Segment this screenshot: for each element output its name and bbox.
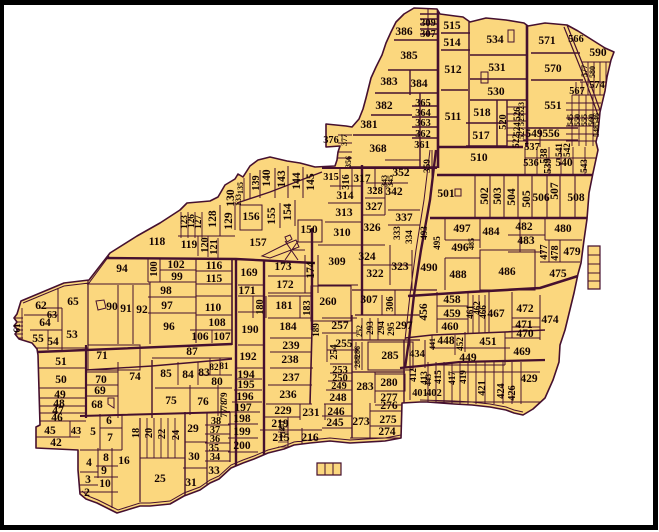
svg-text:2: 2	[84, 487, 90, 499]
svg-text:417: 417	[447, 371, 457, 385]
svg-text:110: 110	[205, 302, 222, 314]
svg-text:441: 441	[428, 338, 437, 350]
svg-text:506: 506	[532, 192, 550, 204]
svg-text:6: 6	[106, 415, 112, 427]
svg-text:61: 61	[12, 323, 22, 333]
svg-text:78: 78	[219, 400, 229, 410]
svg-text:54: 54	[47, 336, 59, 348]
svg-text:45: 45	[44, 425, 56, 437]
svg-text:510: 510	[470, 152, 488, 164]
svg-text:493: 493	[419, 226, 429, 240]
svg-text:451: 451	[479, 336, 497, 348]
svg-text:231: 231	[302, 407, 320, 419]
svg-text:412: 412	[408, 368, 418, 382]
svg-text:121: 121	[209, 239, 220, 254]
svg-text:522: 522	[511, 134, 521, 148]
svg-text:83: 83	[198, 367, 210, 379]
svg-text:144: 144	[291, 172, 303, 190]
svg-text:51: 51	[55, 356, 67, 368]
svg-text:55: 55	[32, 333, 44, 345]
svg-text:524: 524	[512, 122, 522, 136]
svg-text:53: 53	[66, 329, 78, 341]
svg-text:189: 189	[311, 323, 321, 337]
svg-text:386: 386	[395, 26, 413, 38]
svg-text:62: 62	[35, 300, 47, 312]
svg-text:490: 490	[420, 262, 438, 274]
svg-text:198: 198	[233, 413, 251, 425]
svg-text:483: 483	[517, 235, 535, 247]
svg-text:16: 16	[118, 455, 130, 467]
svg-text:497: 497	[453, 223, 471, 235]
svg-text:31: 31	[185, 477, 197, 489]
svg-text:184: 184	[279, 321, 297, 333]
svg-text:504: 504	[506, 188, 518, 206]
svg-text:580: 580	[588, 66, 597, 78]
svg-text:460: 460	[441, 321, 459, 333]
svg-text:85: 85	[160, 368, 172, 380]
svg-text:452: 452	[455, 337, 465, 351]
svg-text:486: 486	[498, 266, 516, 278]
svg-text:467: 467	[487, 308, 505, 320]
svg-text:106: 106	[191, 331, 209, 343]
svg-text:143: 143	[276, 170, 288, 188]
svg-text:566: 566	[568, 34, 583, 45]
svg-text:520: 520	[498, 114, 509, 129]
svg-text:415: 415	[433, 370, 443, 384]
svg-text:64: 64	[39, 317, 51, 329]
svg-text:38: 38	[211, 416, 221, 427]
svg-text:376: 376	[323, 135, 338, 146]
svg-text:505: 505	[521, 190, 533, 208]
svg-text:238: 238	[281, 354, 299, 366]
svg-text:18: 18	[131, 428, 142, 438]
svg-text:190: 190	[241, 324, 259, 336]
svg-text:75: 75	[165, 395, 177, 407]
svg-text:363: 363	[415, 118, 430, 129]
svg-text:91: 91	[120, 303, 132, 315]
svg-text:274: 274	[378, 426, 396, 438]
svg-text:448: 448	[437, 335, 455, 347]
svg-text:229: 229	[274, 405, 292, 417]
svg-text:539: 539	[543, 158, 554, 173]
svg-text:200: 200	[233, 440, 251, 452]
svg-text:426: 426	[507, 385, 518, 400]
svg-text:560: 560	[587, 114, 596, 126]
svg-text:80: 80	[211, 376, 223, 388]
svg-text:71: 71	[96, 350, 108, 362]
svg-text:315: 315	[323, 172, 338, 183]
svg-text:219: 219	[271, 418, 289, 430]
svg-text:155: 155	[266, 207, 278, 225]
svg-text:276: 276	[380, 400, 398, 412]
svg-text:537: 537	[524, 142, 539, 153]
svg-text:245: 245	[326, 417, 344, 429]
svg-text:68: 68	[91, 399, 103, 411]
svg-text:5: 5	[90, 426, 96, 438]
svg-text:7: 7	[107, 432, 113, 444]
svg-text:81: 81	[219, 361, 229, 371]
svg-text:285: 285	[381, 350, 399, 362]
svg-text:237: 237	[282, 372, 300, 384]
svg-text:377: 377	[340, 134, 349, 146]
svg-text:25: 25	[154, 473, 166, 485]
svg-text:496: 496	[451, 242, 469, 254]
svg-text:352: 352	[392, 167, 410, 179]
svg-text:135: 135	[236, 182, 245, 194]
svg-text:309: 309	[328, 256, 346, 268]
svg-text:128: 128	[207, 210, 219, 228]
svg-text:92: 92	[136, 304, 148, 316]
svg-text:501: 501	[437, 188, 455, 200]
svg-text:313: 313	[335, 207, 353, 219]
svg-text:118: 118	[149, 236, 166, 248]
svg-text:323: 323	[391, 261, 409, 273]
svg-text:306: 306	[385, 296, 396, 311]
svg-text:157: 157	[249, 237, 267, 249]
svg-text:295: 295	[386, 322, 396, 336]
svg-text:140: 140	[261, 169, 273, 187]
svg-text:183: 183	[302, 300, 313, 315]
svg-text:556: 556	[542, 128, 560, 140]
svg-text:475: 475	[549, 268, 567, 280]
svg-text:419: 419	[458, 370, 468, 384]
svg-text:215: 215	[272, 432, 290, 444]
svg-text:449: 449	[459, 352, 477, 364]
svg-text:314: 314	[336, 190, 354, 202]
svg-text:127: 127	[193, 215, 203, 229]
svg-text:334: 334	[404, 230, 414, 244]
svg-text:383: 383	[380, 76, 398, 88]
svg-text:181: 181	[275, 300, 293, 312]
svg-text:108: 108	[208, 317, 226, 329]
svg-text:362: 362	[415, 129, 430, 140]
svg-text:29: 29	[187, 423, 199, 435]
svg-text:512: 512	[444, 64, 462, 76]
svg-text:33: 33	[208, 465, 220, 477]
svg-text:79: 79	[219, 392, 229, 402]
svg-text:65: 65	[67, 296, 79, 308]
svg-text:273: 273	[352, 416, 370, 428]
svg-text:402: 402	[426, 388, 441, 399]
svg-text:76: 76	[197, 396, 209, 408]
svg-text:337: 337	[395, 212, 413, 224]
svg-text:333: 333	[392, 226, 402, 240]
svg-text:8: 8	[103, 452, 109, 464]
svg-text:429: 429	[520, 373, 538, 385]
svg-text:42: 42	[50, 437, 62, 449]
svg-text:484: 484	[482, 226, 500, 238]
svg-text:249: 249	[331, 381, 346, 392]
svg-text:458: 458	[443, 294, 461, 306]
svg-text:543: 543	[579, 159, 589, 173]
svg-text:456: 456	[418, 303, 430, 321]
svg-text:252: 252	[355, 325, 364, 337]
svg-text:239: 239	[282, 340, 300, 352]
svg-text:115: 115	[206, 273, 223, 285]
svg-text:30: 30	[188, 451, 200, 463]
svg-text:180: 180	[255, 299, 266, 314]
svg-text:384: 384	[410, 78, 428, 90]
svg-text:515: 515	[443, 20, 461, 32]
svg-text:488: 488	[449, 269, 467, 281]
svg-text:150: 150	[300, 224, 318, 236]
svg-text:361: 361	[414, 140, 429, 151]
svg-text:551: 551	[544, 100, 562, 112]
svg-text:173: 173	[274, 261, 292, 273]
svg-text:478: 478	[550, 245, 561, 260]
svg-text:307: 307	[420, 29, 435, 40]
svg-text:507: 507	[549, 182, 561, 200]
svg-text:526: 526	[512, 107, 522, 121]
svg-text:254: 254	[329, 344, 340, 359]
svg-text:480: 480	[554, 223, 572, 235]
svg-text:359: 359	[422, 159, 432, 173]
svg-text:328: 328	[367, 186, 382, 197]
svg-text:174: 174	[305, 261, 317, 279]
svg-text:293: 293	[365, 321, 375, 335]
svg-text:171: 171	[238, 285, 256, 297]
svg-text:275: 275	[379, 414, 397, 426]
svg-text:514: 514	[443, 37, 461, 49]
svg-text:119: 119	[181, 239, 198, 251]
svg-text:69: 69	[94, 385, 106, 397]
svg-text:46: 46	[51, 412, 63, 424]
svg-text:474: 474	[541, 314, 559, 326]
svg-text:534: 534	[486, 34, 504, 46]
svg-text:102: 102	[167, 259, 185, 271]
svg-text:316: 316	[341, 174, 352, 189]
svg-text:74: 74	[129, 371, 141, 383]
svg-text:536: 536	[523, 158, 538, 169]
svg-text:129: 129	[223, 212, 235, 230]
svg-text:327: 327	[365, 201, 383, 213]
svg-text:309: 309	[420, 18, 435, 29]
svg-text:116: 116	[206, 260, 223, 272]
svg-text:169: 169	[240, 267, 258, 279]
svg-text:154: 154	[282, 203, 294, 221]
svg-text:385: 385	[400, 50, 418, 62]
svg-text:236: 236	[279, 389, 297, 401]
svg-text:260: 260	[319, 296, 337, 308]
svg-text:87: 87	[186, 346, 198, 358]
svg-text:530: 530	[487, 86, 505, 98]
svg-text:479: 479	[563, 246, 581, 258]
svg-text:96: 96	[163, 321, 175, 333]
svg-text:307: 307	[360, 294, 378, 306]
svg-text:156: 156	[242, 211, 260, 223]
svg-text:322: 322	[366, 268, 384, 280]
svg-text:195: 195	[237, 379, 255, 391]
svg-text:342: 342	[385, 186, 403, 198]
svg-text:517: 517	[472, 130, 490, 142]
svg-text:43: 43	[71, 426, 81, 437]
svg-text:294: 294	[376, 321, 386, 335]
svg-text:22: 22	[157, 429, 168, 439]
svg-text:567: 567	[569, 86, 584, 97]
svg-text:503: 503	[492, 187, 504, 205]
svg-text:100: 100	[149, 261, 160, 276]
svg-text:459: 459	[443, 308, 461, 320]
svg-text:574: 574	[589, 80, 604, 91]
svg-text:172: 172	[276, 279, 294, 291]
svg-text:84: 84	[182, 369, 194, 381]
svg-text:472: 472	[516, 303, 534, 315]
svg-text:590: 590	[589, 47, 607, 59]
svg-text:283: 283	[356, 381, 374, 393]
svg-text:99: 99	[171, 271, 183, 283]
svg-text:413: 413	[419, 371, 429, 385]
svg-text:502: 502	[479, 187, 491, 205]
svg-text:495: 495	[432, 236, 442, 250]
svg-text:356: 356	[344, 156, 353, 168]
svg-text:421: 421	[477, 380, 488, 395]
svg-text:381: 381	[360, 119, 378, 131]
svg-text:97: 97	[161, 300, 173, 312]
svg-text:10: 10	[99, 478, 111, 490]
svg-text:257: 257	[331, 320, 349, 332]
svg-text:518: 518	[473, 107, 491, 119]
svg-text:50: 50	[55, 374, 67, 386]
svg-text:9: 9	[101, 465, 107, 477]
svg-text:482: 482	[515, 221, 533, 233]
svg-text:199: 199	[233, 426, 251, 438]
svg-text:326: 326	[363, 222, 381, 234]
svg-text:324: 324	[358, 251, 376, 263]
svg-text:549: 549	[525, 128, 543, 140]
svg-text:90: 90	[106, 301, 118, 313]
svg-text:542: 542	[562, 143, 572, 157]
svg-text:571: 571	[538, 35, 556, 47]
svg-text:297: 297	[395, 320, 413, 332]
svg-text:424: 424	[496, 383, 507, 398]
svg-text:280: 280	[380, 377, 398, 389]
svg-text:3: 3	[85, 474, 91, 486]
svg-text:368: 368	[369, 143, 387, 155]
svg-text:94: 94	[116, 263, 128, 275]
svg-text:98: 98	[160, 285, 172, 297]
svg-text:310: 310	[333, 227, 351, 239]
svg-text:470: 470	[516, 328, 534, 340]
svg-text:477: 477	[539, 244, 550, 259]
svg-text:570: 570	[544, 63, 562, 75]
svg-text:24: 24	[171, 430, 182, 440]
svg-text:216: 216	[301, 432, 319, 444]
svg-text:4: 4	[86, 457, 92, 469]
svg-text:434: 434	[409, 349, 424, 360]
svg-text:508: 508	[567, 192, 585, 204]
svg-text:107: 107	[213, 331, 231, 343]
svg-text:317: 317	[353, 173, 371, 185]
svg-text:248: 248	[329, 392, 347, 404]
svg-text:469: 469	[513, 346, 531, 358]
svg-text:382: 382	[375, 100, 393, 112]
svg-text:288: 288	[353, 356, 362, 368]
svg-text:511: 511	[445, 111, 462, 123]
svg-text:82: 82	[209, 362, 219, 372]
svg-text:540: 540	[555, 157, 573, 169]
svg-text:145: 145	[305, 173, 317, 191]
svg-text:130: 130	[225, 189, 237, 207]
svg-text:531: 531	[488, 62, 506, 74]
svg-text:192: 192	[239, 351, 257, 363]
svg-text:20: 20	[144, 428, 155, 438]
